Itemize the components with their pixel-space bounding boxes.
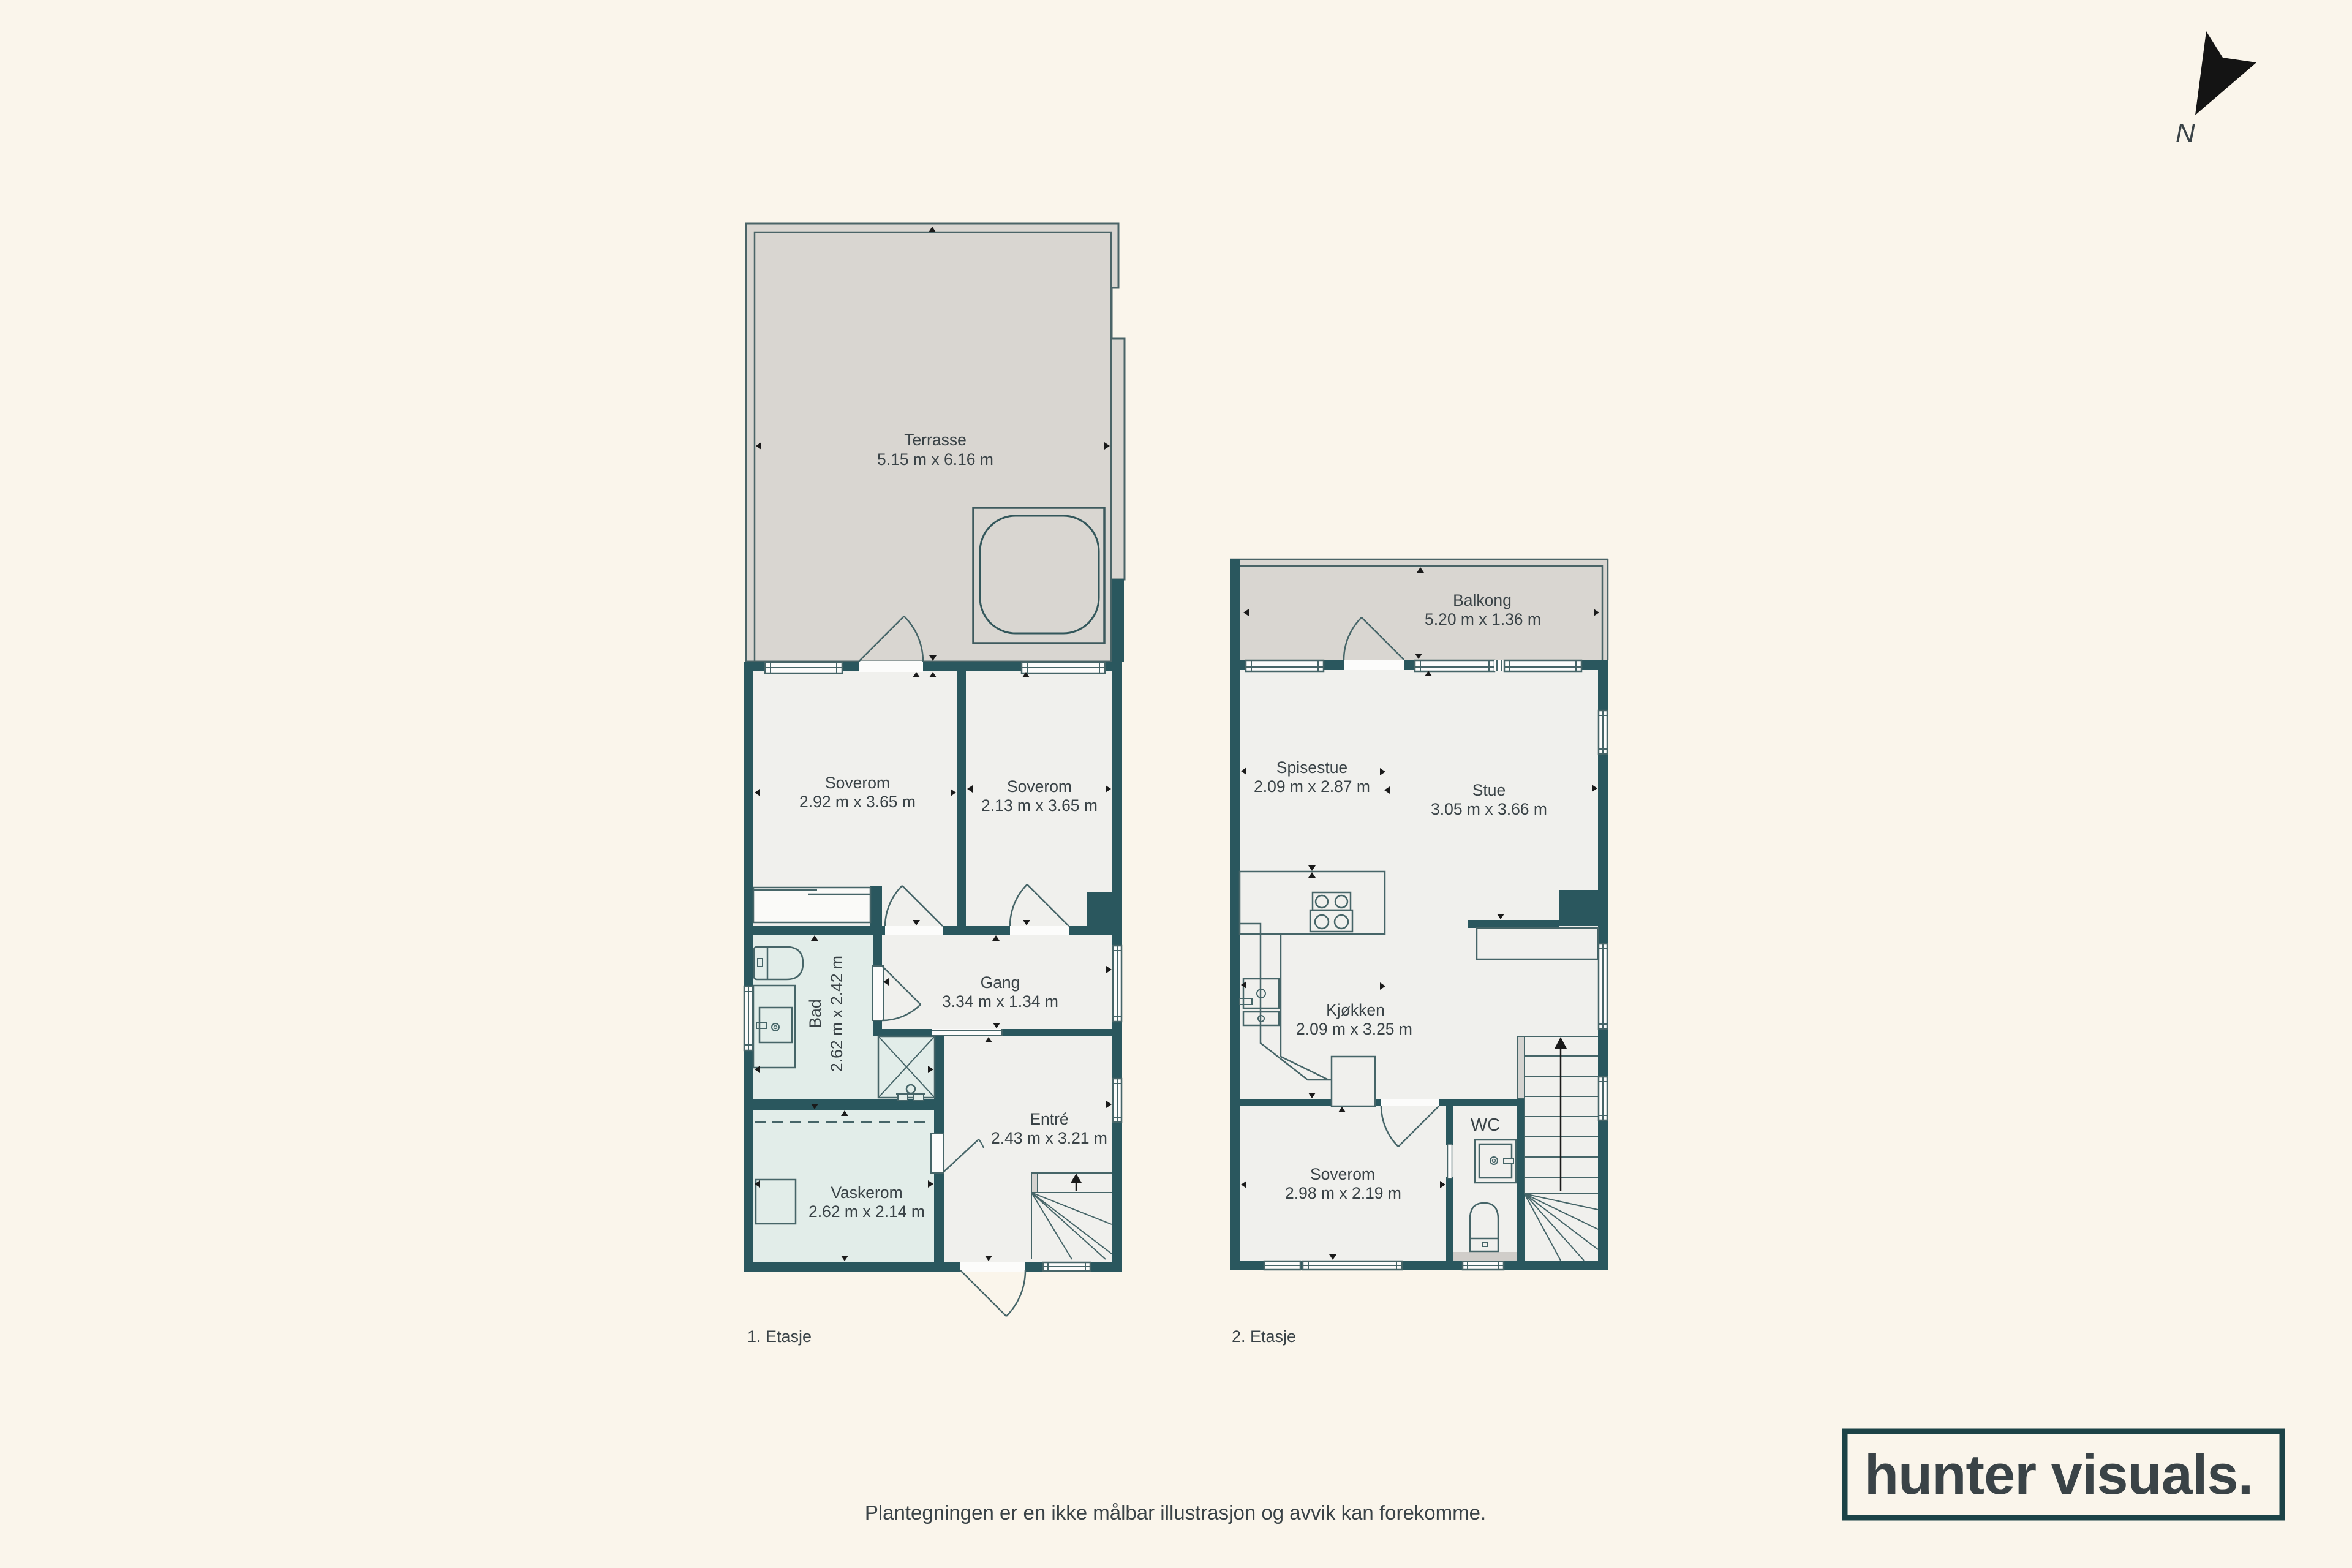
svg-text:2.62 m x 2.42 m: 2.62 m x 2.42 m <box>827 956 846 1072</box>
svg-text:1. Etasje: 1. Etasje <box>747 1327 812 1346</box>
svg-text:Plantegningen er en ikke målba: Plantegningen er en ikke målbar illustra… <box>865 1501 1486 1524</box>
svg-text:Spisestue: Spisestue <box>1276 758 1347 777</box>
svg-text:2.09 m x 2.87 m: 2.09 m x 2.87 m <box>1254 777 1370 796</box>
svg-text:N: N <box>2176 118 2195 148</box>
svg-text:hunter visuals.: hunter visuals. <box>1864 1444 2253 1506</box>
svg-text:Soverom: Soverom <box>1310 1165 1375 1183</box>
svg-text:2.43 m x 3.21 m: 2.43 m x 3.21 m <box>991 1129 1107 1147</box>
svg-text:Balkong: Balkong <box>1453 591 1512 609</box>
svg-text:2. Etasje: 2. Etasje <box>1232 1327 1296 1346</box>
svg-text:5.20 m x 1.36 m: 5.20 m x 1.36 m <box>1425 610 1541 628</box>
svg-text:2.62 m x 2.14 m: 2.62 m x 2.14 m <box>809 1202 925 1221</box>
svg-text:Terrasse: Terrasse <box>904 431 967 449</box>
svg-text:2.98 m x 2.19 m: 2.98 m x 2.19 m <box>1285 1184 1401 1202</box>
svg-text:Soverom: Soverom <box>1007 777 1072 796</box>
svg-text:Stue: Stue <box>1472 781 1506 799</box>
svg-text:5.15 m x 6.16 m: 5.15 m x 6.16 m <box>877 450 993 469</box>
svg-text:Bad: Bad <box>806 999 824 1028</box>
svg-text:3.05 m x 3.66 m: 3.05 m x 3.66 m <box>1431 800 1547 818</box>
svg-text:Entré: Entré <box>1030 1110 1068 1128</box>
svg-text:Kjøkken: Kjøkken <box>1326 1001 1385 1019</box>
svg-text:Gang: Gang <box>981 973 1020 992</box>
svg-text:Soverom: Soverom <box>825 774 890 792</box>
svg-text:WC: WC <box>1471 1115 1500 1135</box>
svg-text:2.92 m x 3.65 m: 2.92 m x 3.65 m <box>799 793 916 811</box>
svg-text:3.34 m x 1.34 m: 3.34 m x 1.34 m <box>942 992 1058 1011</box>
svg-text:Vaskerom: Vaskerom <box>831 1183 902 1202</box>
svg-text:2.09 m x 3.25 m: 2.09 m x 3.25 m <box>1296 1020 1412 1038</box>
svg-text:2.13 m x 3.65 m: 2.13 m x 3.65 m <box>981 796 1098 815</box>
